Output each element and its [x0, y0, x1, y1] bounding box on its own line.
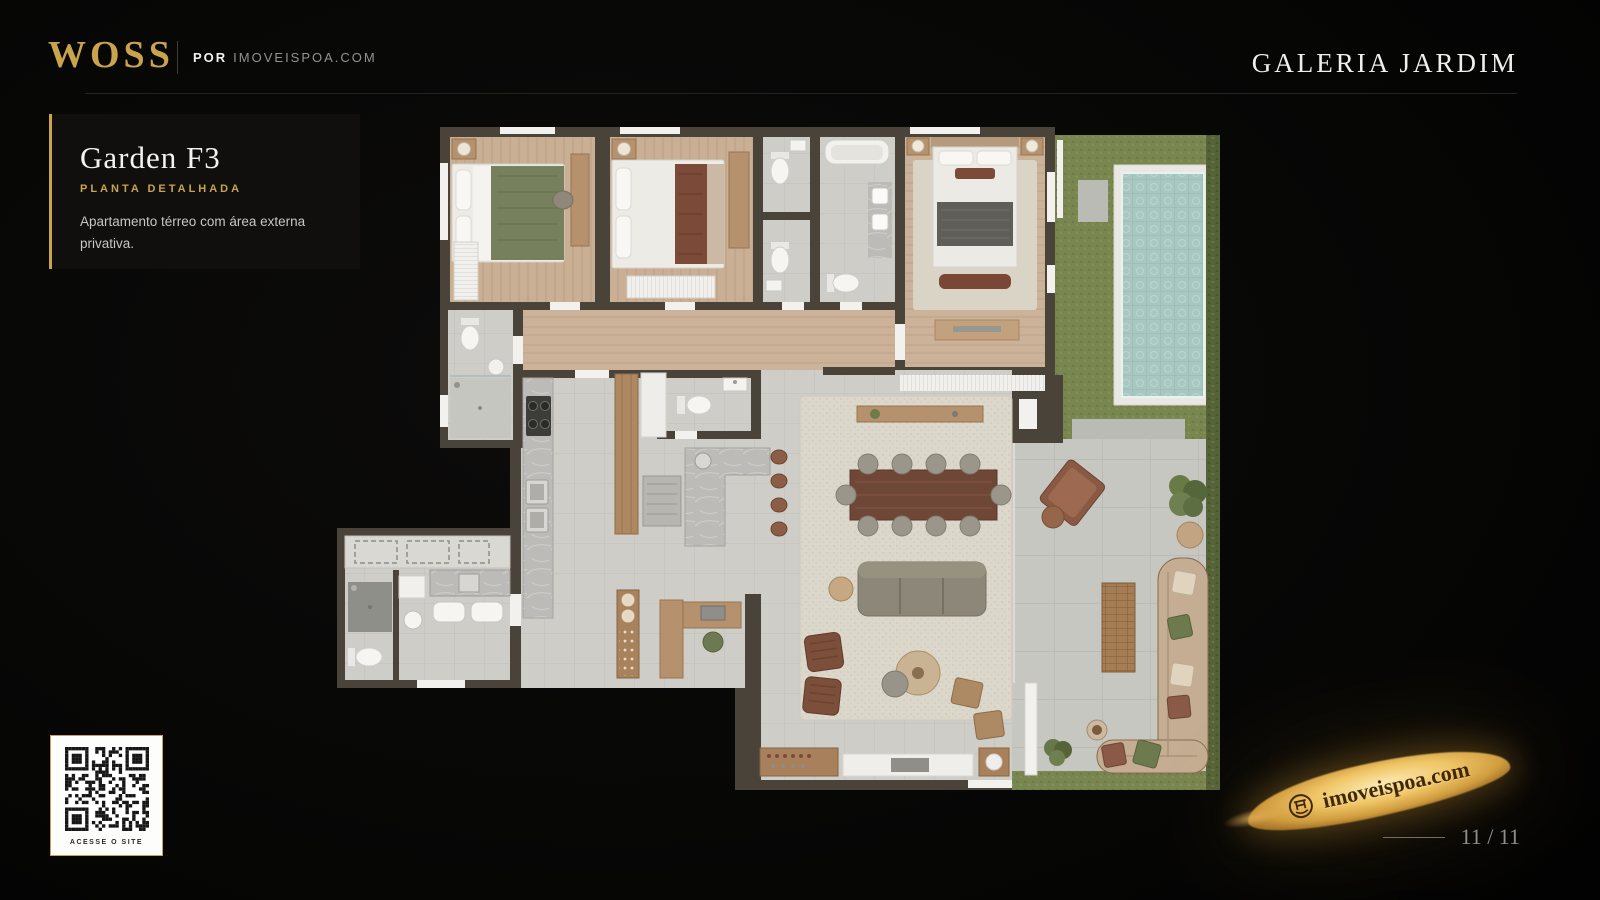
watermark-text: imoveispoa.com — [1320, 756, 1472, 814]
bed-bench — [939, 274, 1011, 289]
hallway-floor — [523, 310, 895, 370]
qr-code — [65, 747, 149, 831]
byline-site: IMOVEISPOA.COM — [233, 50, 377, 65]
floor-plan-svg — [335, 124, 1220, 790]
qr-caption: ACESSE O SITE — [51, 839, 162, 846]
green-blanket — [491, 166, 564, 260]
plan-subtitle: PLANTA DETALHADA — [80, 183, 332, 195]
byline-prefix: POR — [193, 50, 227, 65]
imoveispoa-emblem-icon — [1284, 789, 1317, 822]
stepping-stones — [1072, 419, 1185, 439]
wardrobe-band — [900, 375, 1045, 391]
page-number: 11 / 11 — [1461, 824, 1520, 850]
plan-title: Garden F3 — [80, 140, 332, 176]
bar-cabinet — [760, 748, 838, 776]
wardrobe — [454, 242, 478, 300]
pool — [1122, 173, 1204, 397]
qr-card: ACESSE O SITE — [50, 735, 163, 856]
gray-blanket — [937, 202, 1013, 246]
header-divider-line — [85, 93, 1517, 94]
project-name: GALERIA JARDIM — [1252, 48, 1518, 79]
brand-logo: WOSS — [48, 33, 174, 77]
page-indicator: 11 / 11 — [1383, 824, 1520, 850]
brand-byline: PORIMOVEISPOA.COM — [193, 50, 377, 65]
plan-description: Apartamento térreo com área externa priv… — [80, 211, 332, 256]
info-panel: Garden F3 PLANTA DETALHADA Apartamento t… — [49, 114, 360, 269]
brand-divider — [177, 41, 178, 74]
pouf — [1177, 522, 1203, 548]
page-indicator-line — [1383, 837, 1445, 838]
slatted-table — [1102, 583, 1135, 672]
brochure-page: WOSS PORIMOVEISPOA.COM GALERIA JARDIM Ga… — [0, 0, 1600, 900]
master-bedroom — [907, 137, 1043, 340]
pantry — [615, 374, 638, 534]
floor-plan — [335, 124, 1220, 790]
